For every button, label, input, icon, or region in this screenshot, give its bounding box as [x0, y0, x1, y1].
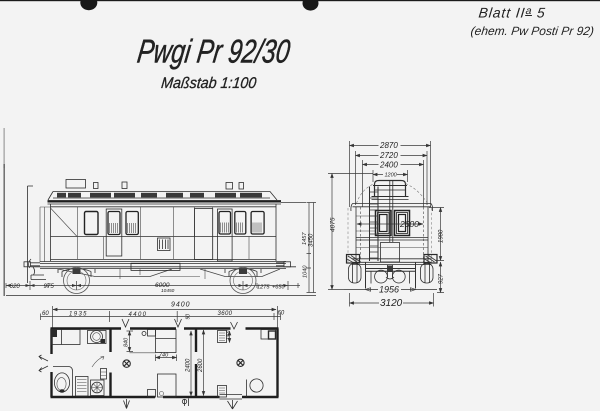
svg-text:1980: 1980 [439, 229, 445, 243]
svg-text:1935: 1935 [69, 312, 87, 318]
svg-text:1956: 1956 [379, 285, 399, 295]
svg-text:2600: 2600 [198, 358, 204, 373]
svg-text:(ehem. Pw Posti Pr 92): (ehem. Pw Posti Pr 92) [470, 24, 595, 38]
svg-text:Maßstab 1:100: Maßstab 1:100 [160, 75, 257, 92]
svg-text:+650: +650 [272, 285, 285, 291]
svg-text:3600: 3600 [218, 311, 233, 317]
svg-text:1400: 1400 [225, 329, 230, 340]
svg-text:10450: 10450 [161, 288, 175, 294]
svg-text:9400: 9400 [171, 302, 190, 309]
svg-text:60: 60 [42, 311, 49, 317]
svg-text:60: 60 [278, 311, 285, 317]
svg-text:1200: 1200 [385, 173, 398, 179]
svg-text:2720: 2720 [379, 151, 398, 160]
svg-text:840: 840 [124, 337, 130, 347]
svg-text:1275: 1275 [257, 285, 270, 291]
svg-text:3120: 3120 [380, 298, 403, 309]
svg-text:2870: 2870 [379, 141, 398, 150]
svg-text:4400: 4400 [129, 312, 147, 318]
svg-text:90: 90 [186, 314, 192, 320]
svg-text:Blatt IIa 5: Blatt IIa 5 [478, 5, 547, 21]
svg-text:2600: 2600 [399, 219, 419, 229]
svg-text:2400: 2400 [186, 358, 192, 373]
svg-text:2400: 2400 [379, 161, 398, 170]
svg-text:927: 927 [439, 273, 445, 284]
svg-text:6000: 6000 [155, 282, 170, 289]
svg-text:Pwgi Pr 92/30: Pwgi Pr 92/30 [135, 34, 293, 71]
svg-text:1457: 1457 [302, 232, 308, 245]
svg-text:975: 975 [44, 283, 55, 290]
svg-text:620: 620 [10, 283, 21, 290]
svg-text:3450: 3450 [309, 233, 315, 247]
svg-text:4075: 4075 [330, 217, 337, 232]
svg-text:740: 740 [159, 353, 169, 359]
svg-text:1040: 1040 [303, 265, 309, 278]
